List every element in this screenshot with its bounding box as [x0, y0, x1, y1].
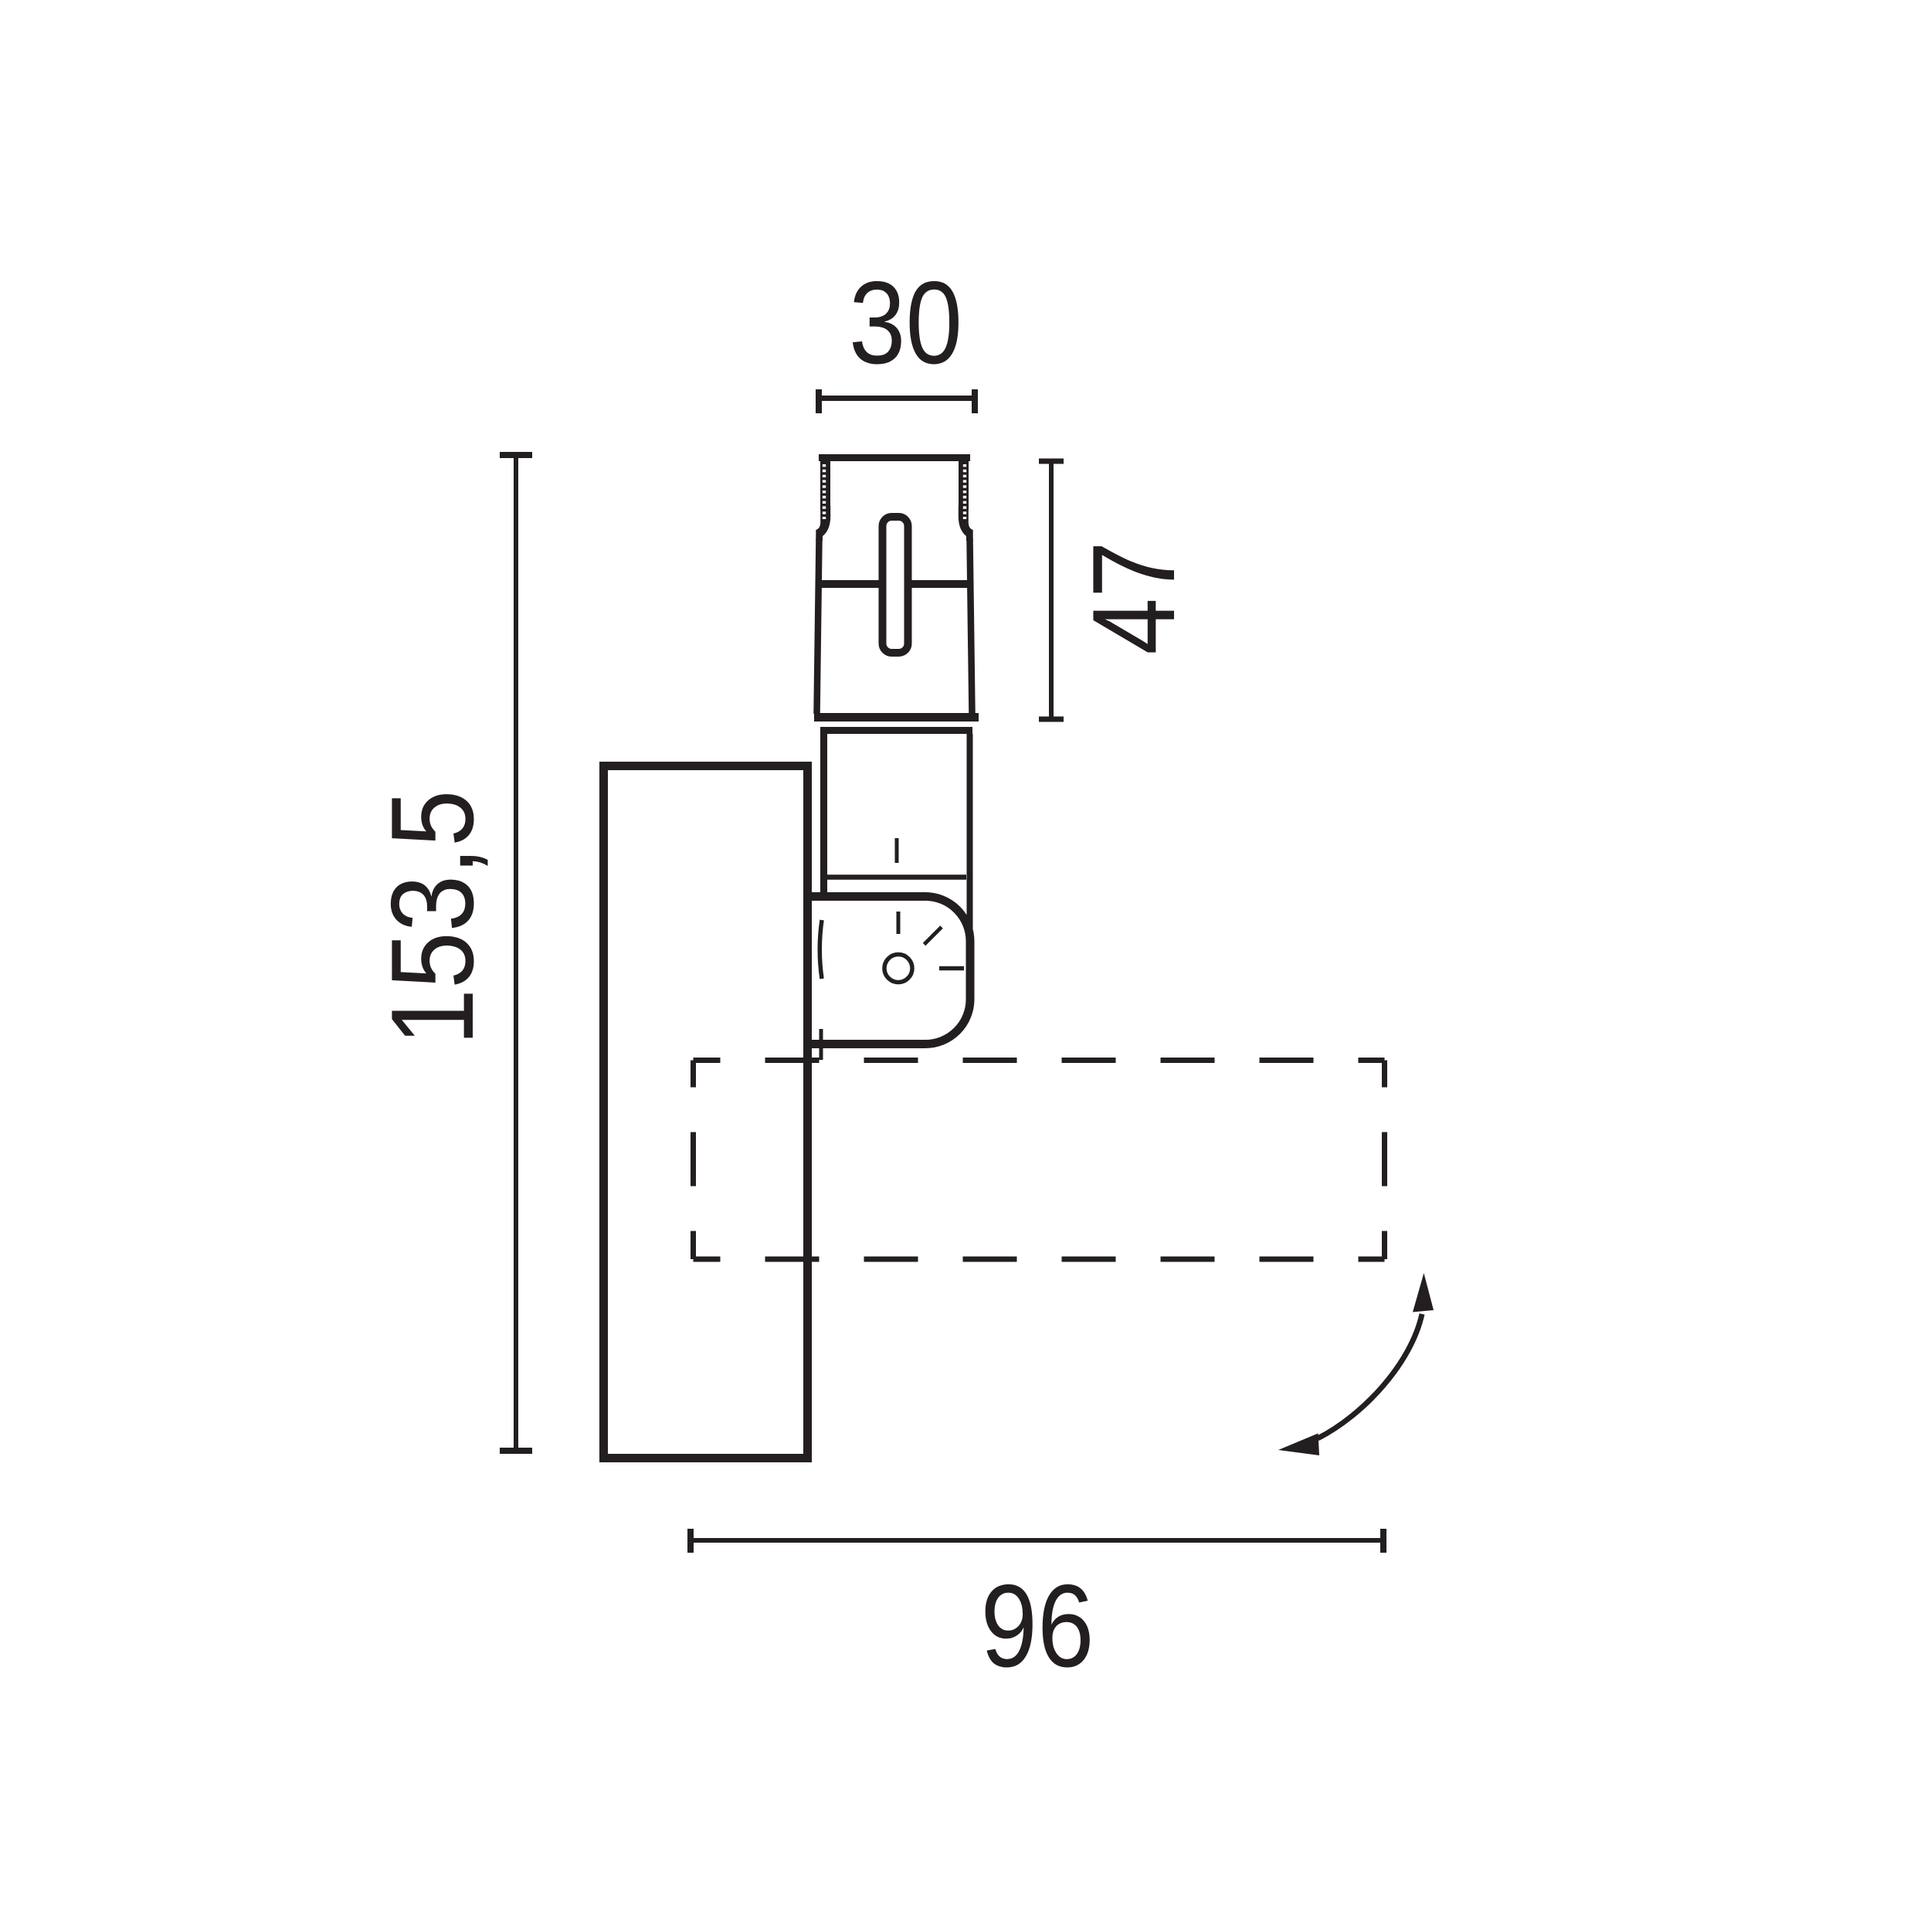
svg-text:96: 96 [980, 1560, 1094, 1692]
svg-text:30: 30 [849, 257, 962, 389]
svg-text:47: 47 [1068, 541, 1200, 654]
svg-text:153,5: 153,5 [367, 790, 498, 1046]
